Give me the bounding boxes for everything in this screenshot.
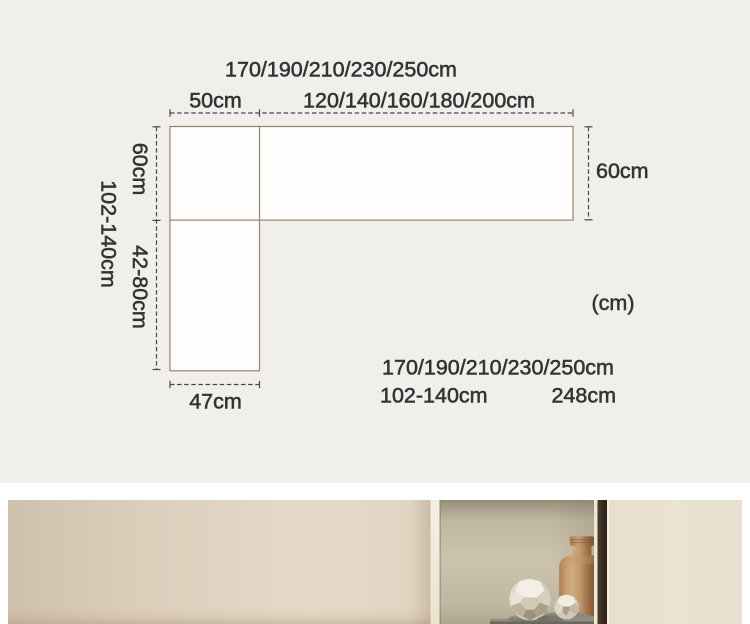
svg-text:120/140/160/180/200cm: 120/140/160/180/200cm (303, 88, 535, 112)
svg-text:47cm: 47cm (189, 390, 242, 414)
svg-text:42-80cm: 42-80cm (128, 245, 152, 329)
svg-text:60cm: 60cm (128, 143, 152, 196)
svg-text:102-140cm: 102-140cm (96, 180, 120, 288)
svg-text:248cm: 248cm (551, 384, 616, 408)
svg-text:170/190/210/230/250cm: 170/190/210/230/250cm (225, 58, 457, 82)
svg-text:102-140cm: 102-140cm (380, 384, 488, 408)
svg-text:60cm: 60cm (596, 159, 649, 183)
svg-text:170/190/210/230/250cm: 170/190/210/230/250cm (382, 356, 614, 380)
svg-text:50cm: 50cm (189, 88, 242, 112)
svg-text:(cm): (cm) (592, 291, 635, 315)
